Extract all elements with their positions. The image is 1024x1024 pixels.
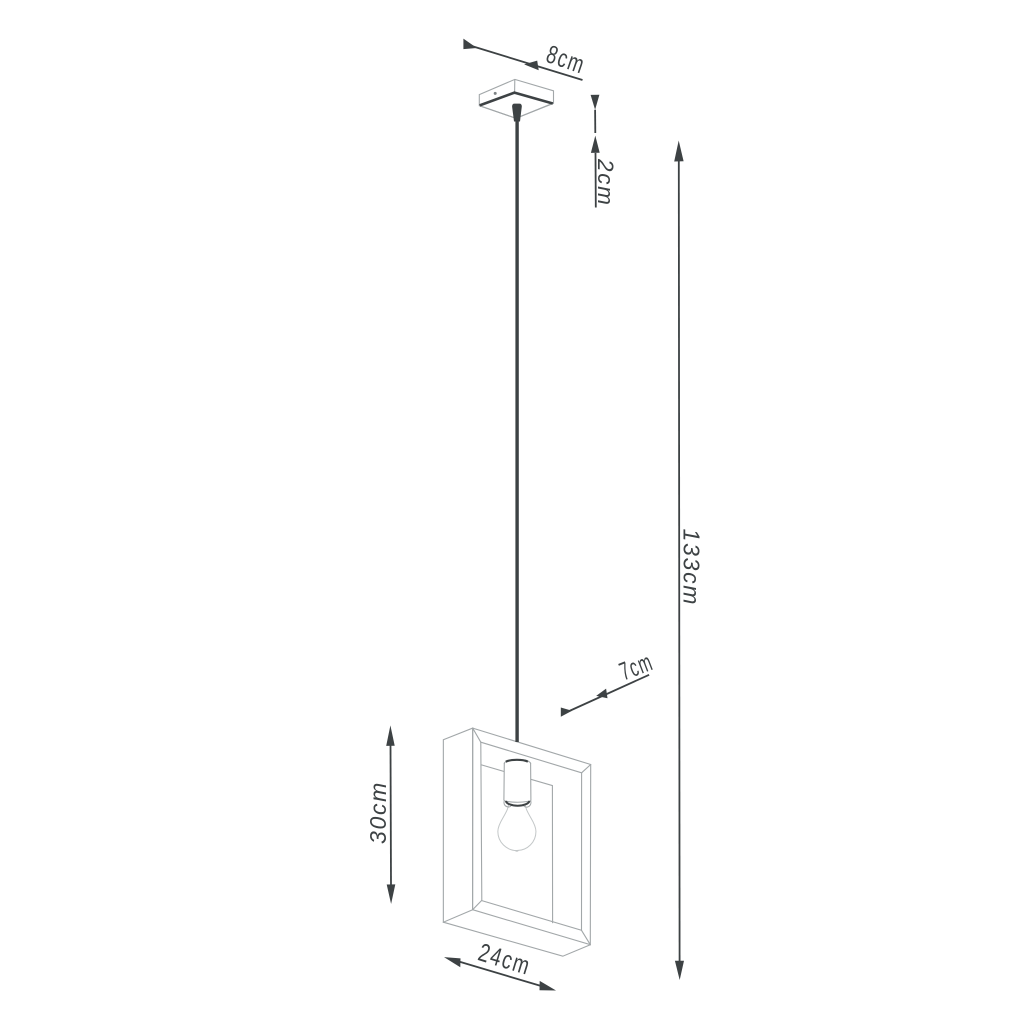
svg-text:30cm: 30cm bbox=[365, 781, 391, 844]
svg-text:2cm: 2cm bbox=[593, 158, 618, 207]
svg-text:133cm: 133cm bbox=[679, 529, 705, 607]
